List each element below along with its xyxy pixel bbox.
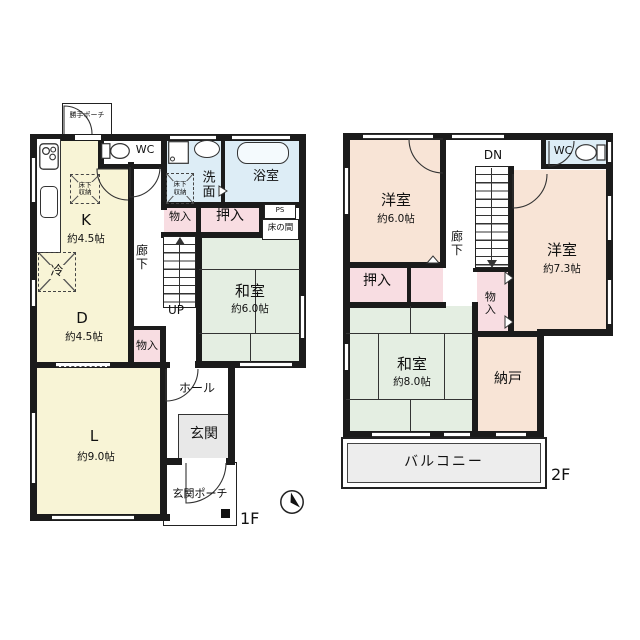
window bbox=[240, 362, 292, 367]
wall bbox=[407, 266, 411, 304]
door-mark-storage-2f bbox=[505, 316, 514, 328]
underfloor-storage-label: 床下収納 bbox=[173, 181, 188, 195]
hall-label: ホール bbox=[172, 382, 222, 395]
wall bbox=[472, 302, 478, 438]
compass-north-icon bbox=[279, 489, 305, 515]
fridge-box: 冷 bbox=[38, 252, 76, 292]
stairs-up-label: UP bbox=[157, 304, 195, 317]
tatami-line bbox=[346, 333, 472, 334]
washroom-label: 洗面 bbox=[199, 163, 214, 205]
tatami-line bbox=[410, 400, 411, 431]
kitchen-name: K bbox=[74, 212, 98, 229]
stairs-up-arrow-icon bbox=[175, 237, 185, 245]
door-mark-bathroom bbox=[219, 186, 228, 197]
floor-label-2f: 2F bbox=[551, 466, 570, 484]
floor-label-1f: 1F bbox=[240, 510, 259, 528]
wall bbox=[472, 331, 544, 337]
living-name: L bbox=[82, 428, 106, 445]
entrance-label: 玄関 bbox=[184, 427, 224, 443]
tatami-2f-size: 約8.0帖 bbox=[383, 377, 441, 389]
bathroom-label: 浴室 bbox=[240, 170, 292, 185]
fridge-label: 冷 bbox=[39, 253, 75, 291]
tokonoma-label: 床の間 bbox=[262, 224, 299, 234]
storage-label-2f: 物入 bbox=[483, 282, 495, 324]
floor-plan-canvas: 冷 床下収納 床下収納 1F 勝手ポーチ WC 洗面 浴室 廊下 物入 bbox=[0, 0, 640, 640]
corridor-label-1f: 廊下 bbox=[134, 234, 147, 280]
underfloor-storage-washroom: 床下収納 bbox=[166, 173, 194, 204]
wc-label-1f: WC bbox=[131, 144, 159, 156]
tatami-1f-size: 約6.0帖 bbox=[221, 304, 279, 316]
window bbox=[31, 413, 36, 483]
door-arc-kitchen bbox=[97, 169, 128, 200]
window bbox=[344, 344, 349, 370]
window bbox=[607, 196, 612, 240]
kitchen-size: 約4.5帖 bbox=[58, 234, 114, 246]
wall bbox=[343, 302, 446, 308]
tatami-line bbox=[444, 333, 445, 399]
tatami-line bbox=[255, 269, 256, 333]
underfloor-storage-label: 床下収納 bbox=[78, 182, 93, 196]
door-arc-western-a bbox=[409, 139, 443, 173]
tatami-line bbox=[410, 306, 411, 333]
kitchen-porch-label: 勝手ポーチ bbox=[63, 112, 111, 120]
ps-label: PS bbox=[264, 207, 296, 215]
window bbox=[300, 296, 305, 338]
tatami-line bbox=[199, 269, 300, 270]
balcony: バルコニー bbox=[347, 443, 541, 483]
window bbox=[607, 280, 612, 324]
stairs-center-line bbox=[179, 238, 180, 306]
tatami-line bbox=[378, 333, 379, 399]
bathtub-icon bbox=[237, 142, 289, 164]
washbasin-icon bbox=[194, 140, 220, 158]
door-mark-oshiire-2f bbox=[427, 256, 439, 264]
tatami-2f-name: 和室 bbox=[384, 356, 440, 373]
wall bbox=[228, 361, 235, 465]
window bbox=[232, 135, 290, 140]
western-b-name: 洋室 bbox=[532, 242, 592, 259]
western-a-name: 洋室 bbox=[366, 192, 426, 209]
door-arc-western-b bbox=[513, 174, 547, 208]
living-size: 約9.0帖 bbox=[68, 452, 124, 464]
wc-label-2f: WC bbox=[550, 145, 576, 157]
stairs-down bbox=[475, 166, 509, 268]
door-opening bbox=[75, 135, 101, 140]
window bbox=[607, 142, 612, 162]
window bbox=[31, 158, 36, 202]
washing-machine-icon bbox=[168, 141, 189, 164]
nando-label: 納戸 bbox=[485, 372, 531, 388]
western-a-size: 約6.0帖 bbox=[366, 214, 426, 226]
dining-name: D bbox=[70, 310, 94, 327]
wall bbox=[543, 329, 613, 336]
tatami-1f-name: 和室 bbox=[222, 283, 278, 300]
oshiire-label-2f: 押入 bbox=[353, 274, 401, 290]
storage-corridor-label: 物入 bbox=[165, 211, 195, 223]
porch-post-dot bbox=[221, 509, 230, 518]
tatami-line bbox=[250, 333, 251, 363]
window bbox=[52, 515, 134, 520]
sliding-opening bbox=[56, 363, 110, 367]
door-mark-storage-2f bbox=[505, 272, 514, 284]
dining-size: 約4.5帖 bbox=[56, 332, 112, 344]
stairs-center-line bbox=[491, 168, 492, 264]
stove-icon bbox=[39, 143, 59, 170]
oshiire-label-1f: 押入 bbox=[204, 209, 256, 225]
stairs-down-label: DN bbox=[477, 149, 509, 162]
kitchen-sink-icon bbox=[40, 186, 58, 218]
corridor-label-2f: 廊下 bbox=[449, 220, 462, 266]
toilet-icon-1f bbox=[101, 141, 131, 161]
window bbox=[344, 168, 349, 214]
toilet-icon-2f bbox=[574, 142, 606, 163]
wall bbox=[196, 202, 201, 234]
wall bbox=[196, 232, 202, 368]
window bbox=[31, 280, 36, 306]
storage-dining-label: 物入 bbox=[132, 340, 162, 352]
tatami-line bbox=[346, 399, 472, 400]
window bbox=[452, 134, 504, 139]
balcony-label: バルコニー bbox=[404, 455, 484, 471]
closet-small-2f bbox=[411, 268, 443, 304]
underfloor-storage-kitchen: 床下収納 bbox=[70, 174, 100, 204]
stairs-down-arrow-icon bbox=[487, 260, 497, 268]
western-b-size: 約7.3帖 bbox=[532, 264, 592, 276]
door-arc-wc bbox=[130, 167, 160, 197]
entrance-porch-label: 玄関ポーチ bbox=[164, 488, 236, 500]
wall bbox=[537, 329, 544, 438]
